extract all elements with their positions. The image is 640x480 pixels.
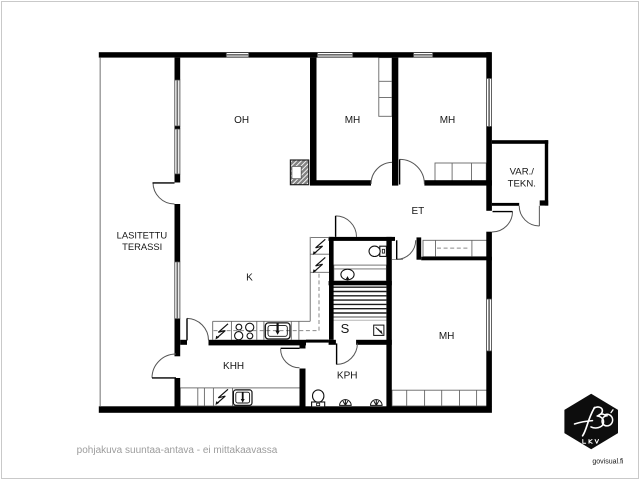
svg-text:govisual.fi: govisual.fi <box>592 459 624 466</box>
svg-text:LASITETTU: LASITETTU <box>117 230 168 241</box>
svg-text:VAR./: VAR./ <box>510 167 535 178</box>
svg-text:MH: MH <box>345 115 361 126</box>
svg-text:MH: MH <box>439 331 455 342</box>
svg-text:MH: MH <box>440 115 456 126</box>
svg-text:KPH: KPH <box>337 370 358 381</box>
svg-text:K: K <box>246 273 253 284</box>
svg-text:OH: OH <box>234 115 249 126</box>
svg-text:KHH: KHH <box>223 361 244 372</box>
svg-text:ET: ET <box>412 206 425 217</box>
svg-text:S: S <box>341 321 350 336</box>
svg-text:pohjakuva suuntaa-antava - ei: pohjakuva suuntaa-antava - ei mittakaava… <box>77 445 278 456</box>
svg-text:TERASSI: TERASSI <box>122 241 162 252</box>
svg-text:TEKN.: TEKN. <box>508 179 536 190</box>
